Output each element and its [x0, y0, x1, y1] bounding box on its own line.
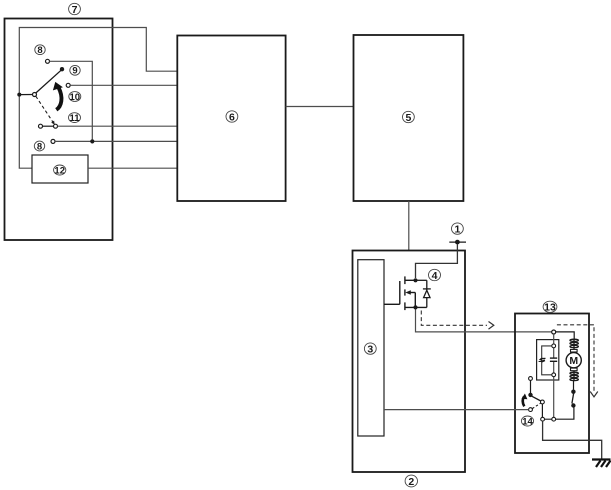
- svg-text:6: 6: [229, 111, 235, 123]
- svg-text:12: 12: [54, 166, 65, 177]
- svg-text:11: 11: [69, 113, 80, 124]
- svg-text:10: 10: [70, 92, 81, 103]
- svg-text:8: 8: [37, 141, 42, 152]
- svg-text:3: 3: [367, 343, 373, 355]
- svg-text:M: M: [569, 355, 578, 367]
- svg-text:8: 8: [37, 45, 42, 56]
- svg-text:1: 1: [454, 223, 460, 235]
- svg-text:9: 9: [72, 66, 77, 77]
- svg-text:4: 4: [432, 270, 438, 282]
- svg-text:13: 13: [544, 302, 556, 314]
- svg-text:14: 14: [522, 417, 533, 428]
- svg-text:2: 2: [408, 476, 414, 488]
- svg-text:5: 5: [405, 112, 411, 124]
- svg-text:7: 7: [72, 4, 78, 16]
